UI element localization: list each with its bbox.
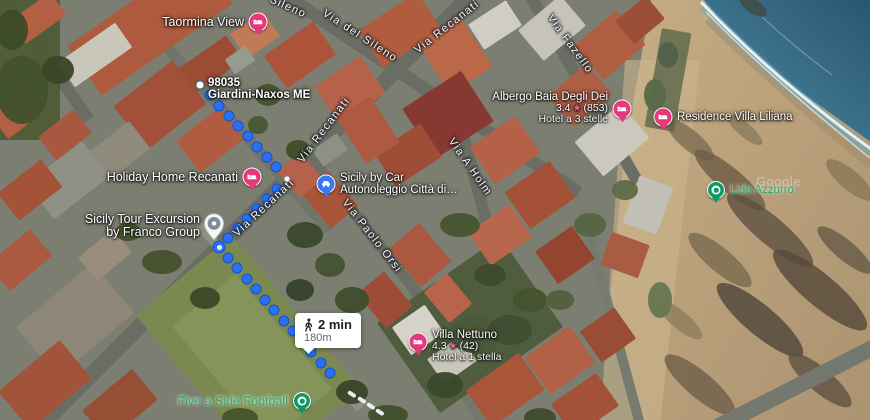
route-dot: [252, 141, 263, 152]
route-dot: [233, 121, 244, 132]
terrain-shape: [658, 42, 678, 68]
route-dot: [278, 315, 289, 326]
route-dot: [315, 357, 326, 368]
walking-icon: [303, 318, 314, 332]
green-place-pin-icon[interactable]: [293, 392, 311, 410]
green-pin-core: [714, 188, 719, 193]
holiday-home-recanati-label: Holiday Home Recanati: [107, 171, 238, 184]
five-a-side-football-label: Five a Side Football: [178, 395, 288, 408]
route-dot: [242, 131, 253, 142]
terrain-shape: [440, 213, 480, 237]
lodging-pin-icon[interactable]: [613, 100, 632, 119]
terrain-shape: [190, 287, 220, 309]
sicily-by-car-label-line: Sicily by Car: [340, 172, 458, 184]
terrain-shape: [335, 287, 369, 313]
gray-place-pin-icon[interactable]: [203, 213, 225, 246]
residence-villa-liliana-label-line: Residence Villa Liliana: [677, 111, 793, 123]
pin-tail: [659, 125, 667, 131]
route-duration: 2 min: [318, 317, 352, 332]
route-dot: [269, 305, 280, 316]
five-a-side-football-label-line: Five a Side Football: [178, 395, 288, 408]
route-start-marker: [195, 80, 206, 91]
pin-tail: [248, 185, 256, 191]
route-dot: [214, 100, 225, 111]
lido-azzurro-label-line: Lido Azzurro: [730, 184, 794, 196]
terrain-shape: [427, 372, 463, 398]
route-dot: [250, 284, 261, 295]
route-duration-bubble[interactable]: 2 min 180m: [295, 313, 361, 348]
lodging-pin-icon[interactable]: [654, 108, 673, 127]
holiday-home-recanati-label-line: Holiday Home Recanati: [107, 171, 238, 184]
sicily-by-car-label: Sicily by CarAutonoleggio Città di…: [340, 172, 458, 196]
terrain-shape: [287, 222, 323, 248]
terrain-shape: [648, 282, 672, 318]
terrain-shape: [142, 250, 182, 274]
taormina-view-label: Taormina View: [162, 16, 244, 29]
route-dot: [223, 252, 234, 263]
address-98035-label-line: 98035: [208, 77, 310, 89]
albergo-baia-degli-dei-category: Hotel a 3 stelle: [492, 114, 608, 125]
pin-tail: [322, 192, 330, 198]
pin-tail: [712, 197, 720, 203]
taormina-view-label-line: Taormina View: [162, 16, 244, 29]
pin-tail: [618, 117, 626, 123]
address-98035-label: 98035Giardini-Naxos ME: [208, 77, 310, 101]
map-canvas[interactable]: SilenoVia del SilenoVia RecanatiVia Reca…: [0, 0, 870, 420]
pin-tail: [298, 408, 306, 414]
villa-nettuno-label: Villa Nettuno4.3★(42)Hotel a 1 stella: [432, 329, 501, 363]
residence-villa-liliana-label: Residence Villa Liliana: [677, 111, 793, 123]
lodging-pin-icon[interactable]: [409, 333, 428, 352]
route-dot: [232, 263, 243, 274]
route-distance: 180m: [304, 332, 352, 344]
sicily-tour-excursion-label: Sicily Tour Excursionby Franco Group: [85, 213, 200, 239]
green-place-pin-icon[interactable]: [707, 181, 725, 199]
route-corner-marker: [284, 176, 291, 183]
lodging-pin-icon[interactable]: [249, 13, 268, 32]
terrain-shape: [513, 288, 547, 312]
albergo-baia-degli-dei-label: Albergo Baia Degli Dei3.4★(853)Hotel a 3…: [492, 91, 608, 125]
terrain-shape: [644, 79, 666, 111]
terrain-shape: [546, 290, 574, 310]
terrain-shape: [474, 264, 506, 286]
terrain-shape: [315, 253, 345, 277]
route-dot: [260, 294, 271, 305]
green-pin-core: [300, 399, 305, 404]
sicily-tour-excursion-label-line: by Franco Group: [85, 226, 200, 239]
terrain-shape: [42, 56, 74, 84]
route-dot: [241, 273, 252, 284]
sicily-by-car-label-line: Autonoleggio Città di…: [340, 184, 458, 196]
lido-azzurro-label: Lido Azzurro: [730, 184, 794, 196]
terrain-shape: [612, 180, 638, 200]
villa-nettuno-category: Hotel a 1 stella: [432, 352, 501, 363]
route-dot: [223, 110, 234, 121]
car-rental-pin-icon[interactable]: [317, 175, 336, 194]
terrain-shape: [574, 213, 606, 237]
lodging-pin-icon[interactable]: [243, 168, 262, 187]
route-dot: [271, 162, 282, 173]
route-dot: [261, 151, 272, 162]
pin-tail: [254, 30, 262, 36]
pin-tail: [414, 350, 422, 356]
address-98035-label-line: Giardini-Naxos ME: [208, 89, 310, 101]
route-dot: [324, 368, 335, 379]
terrain-shape: [286, 279, 314, 301]
